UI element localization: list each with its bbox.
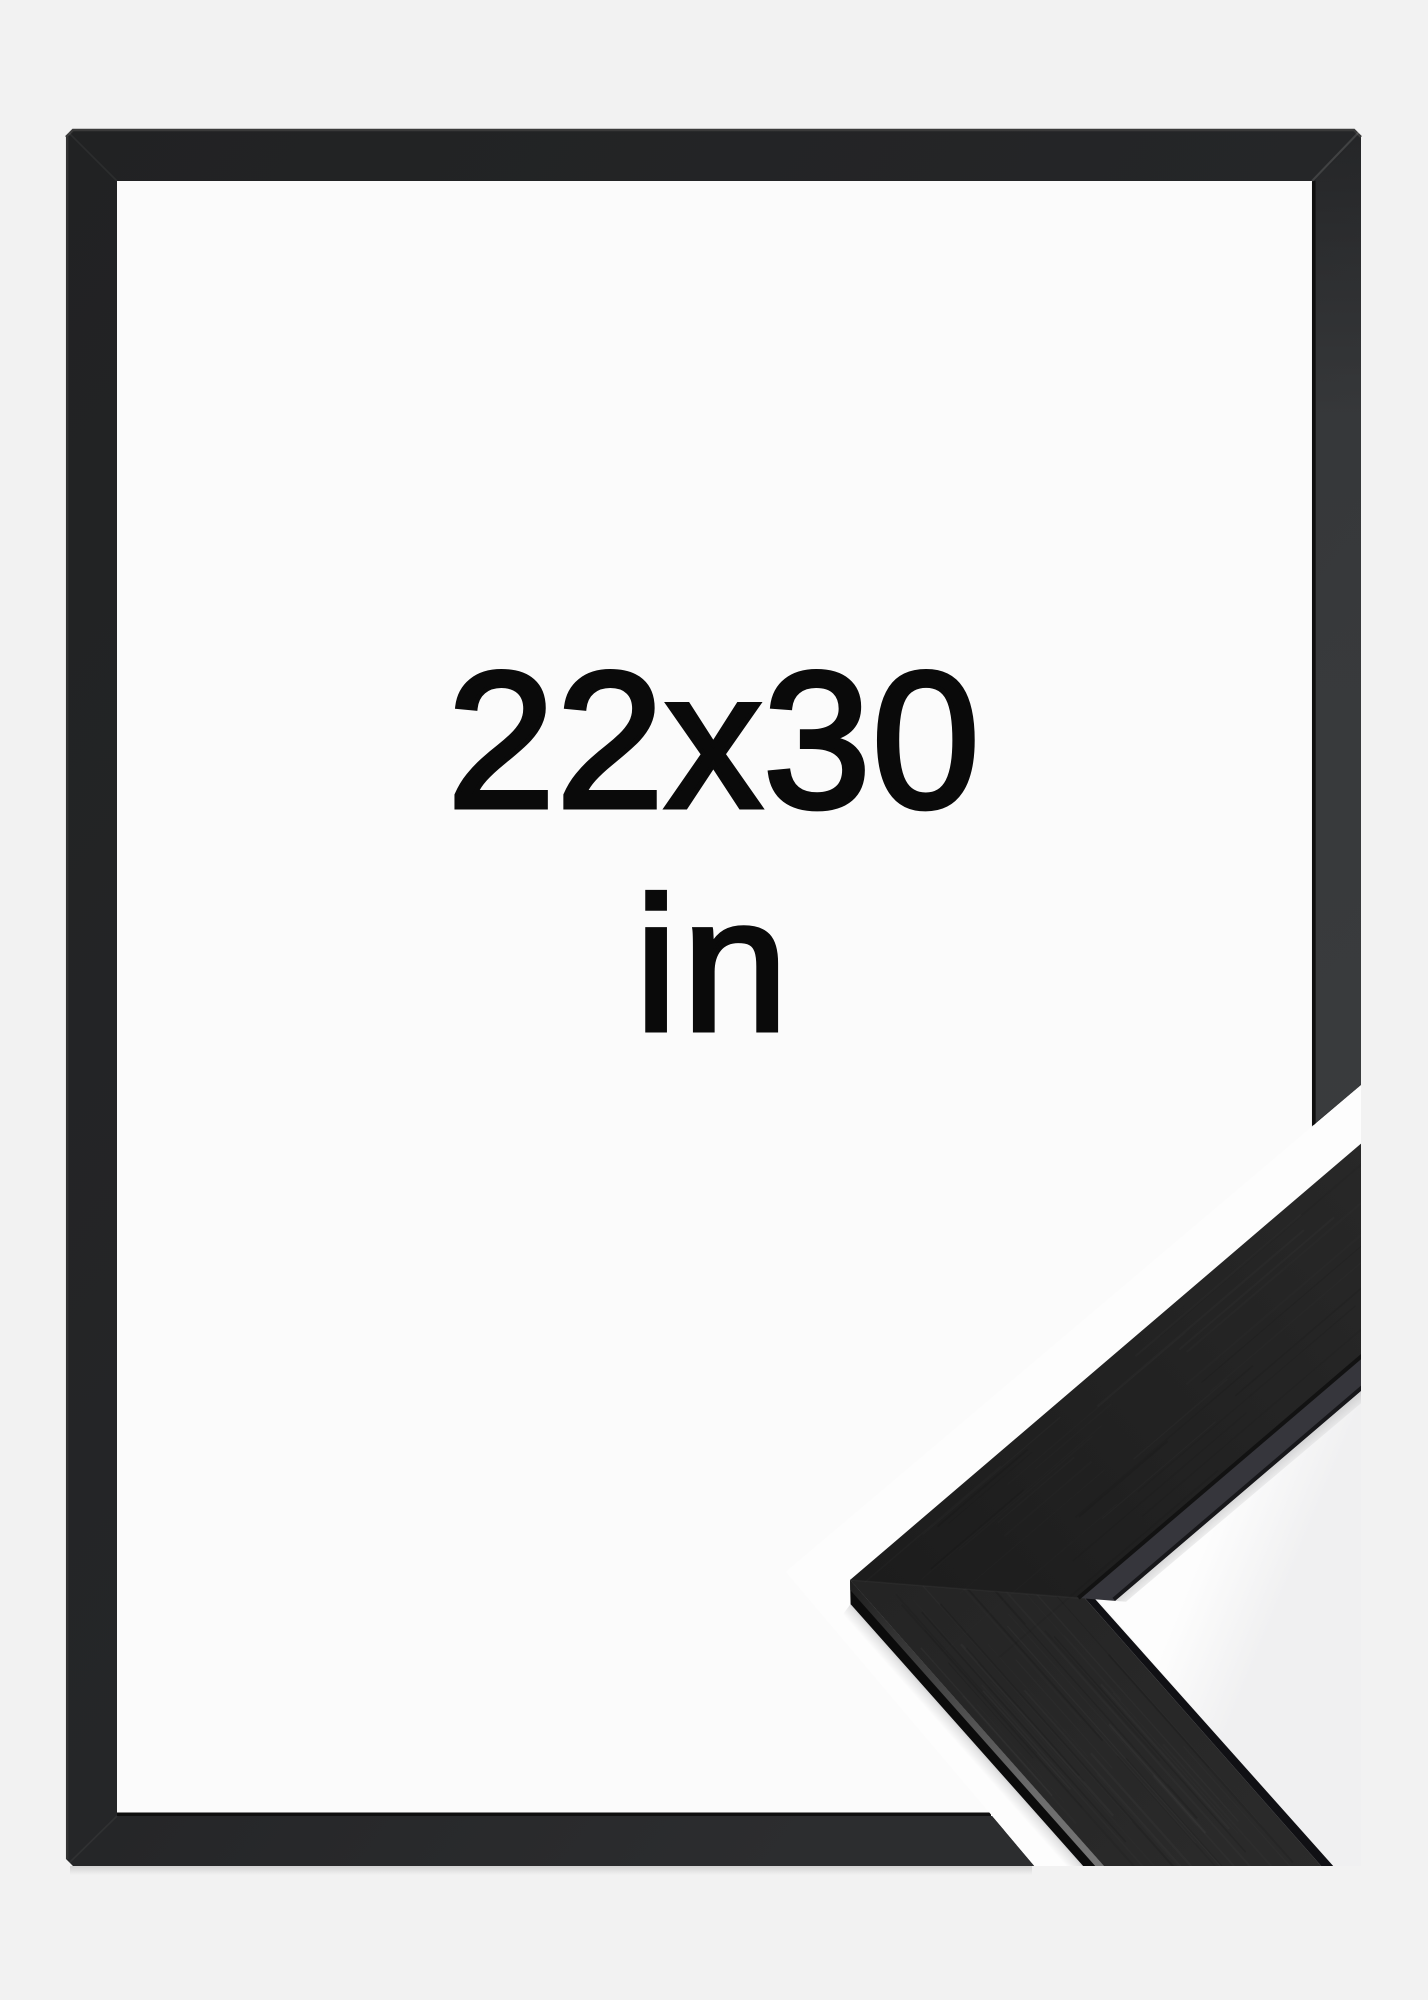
svg-text:in: in <box>635 859 793 1071</box>
svg-text:22x30: 22x30 <box>447 632 981 849</box>
